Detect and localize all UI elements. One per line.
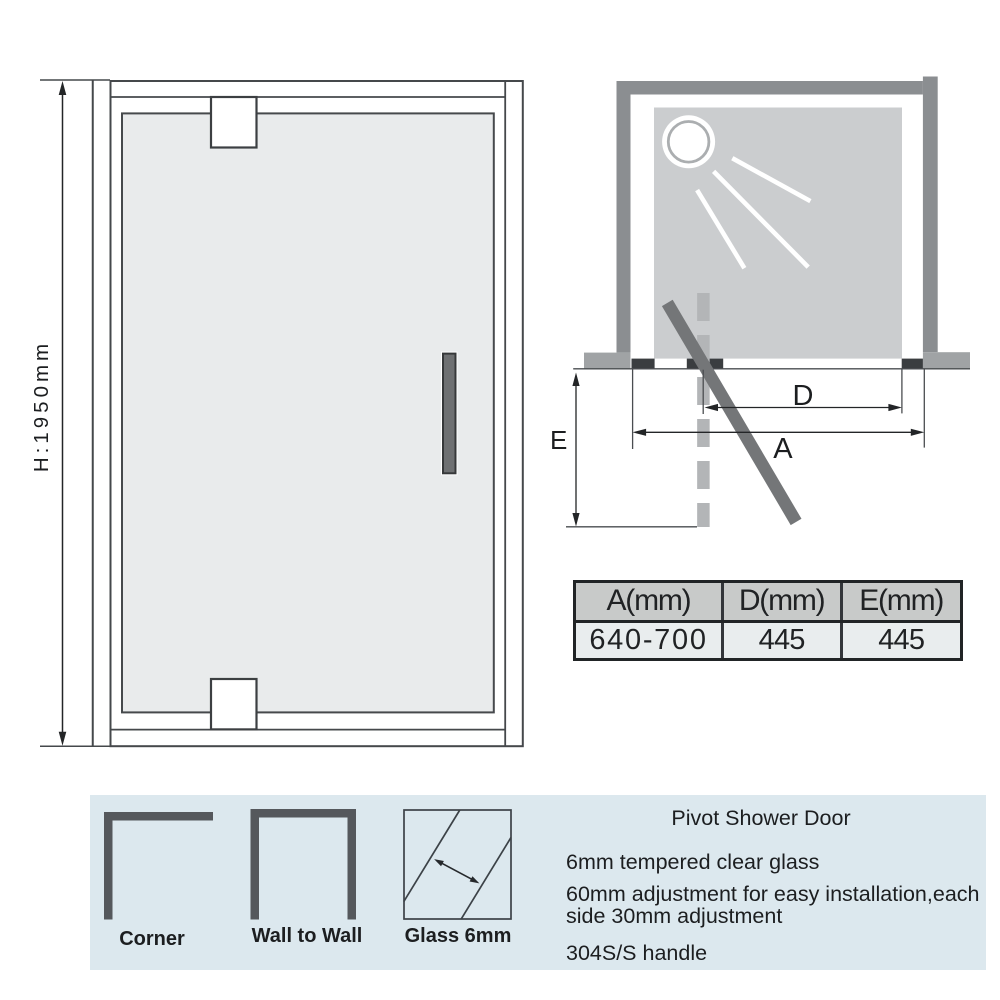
svg-text:E: E	[550, 425, 567, 455]
svg-text:A: A	[773, 433, 793, 465]
svg-text:D: D	[793, 380, 814, 412]
